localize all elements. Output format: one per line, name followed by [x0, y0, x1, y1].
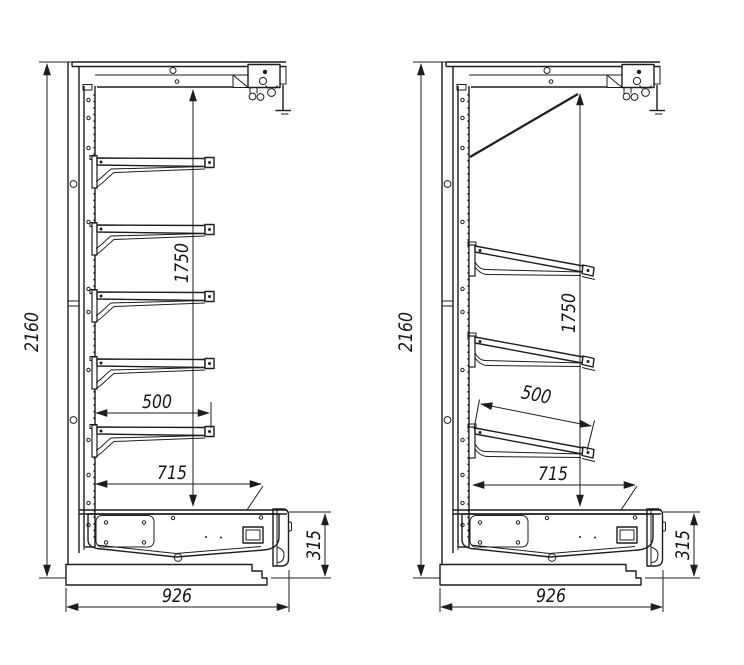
inclined-shelf-bracket — [468, 242, 595, 280]
air-deflector-line — [470, 94, 578, 157]
svg-text:500: 500 — [142, 391, 172, 413]
inclined-shelf-bracket — [468, 424, 595, 462]
shelf-bracket — [90, 290, 214, 323]
unit-frame — [66, 62, 292, 585]
shelf-bracket — [90, 223, 214, 256]
dim-overall-height: 2160 — [395, 62, 448, 578]
dim-overall-depth: 926 — [440, 570, 663, 612]
svg-text:315: 315 — [672, 530, 694, 560]
drawing-canvas: 2160 1750 500 715 315 926 — [0, 0, 744, 665]
view-horizontal-shelves: 2160 1750 500 715 315 926 — [21, 62, 331, 612]
inclined-shelf-bracket — [468, 333, 595, 371]
shelf-bracket — [90, 357, 214, 390]
svg-text:926: 926 — [162, 585, 192, 607]
svg-text:715: 715 — [538, 463, 568, 485]
view-inclined-shelves: 2160 1750 500 715 315 926 — [395, 62, 700, 612]
svg-text:500: 500 — [519, 381, 553, 409]
dim-base-depth: 715 — [96, 462, 263, 510]
svg-text:1750: 1750 — [171, 243, 193, 283]
svg-text:1750: 1750 — [558, 293, 580, 333]
dim-shelf-depth: 500 — [96, 391, 211, 428]
svg-text:315: 315 — [303, 530, 325, 560]
svg-text:2160: 2160 — [21, 312, 43, 352]
shelf-bracket — [90, 425, 214, 458]
dim-base-depth: 715 — [473, 463, 637, 510]
dim-overall-depth: 926 — [66, 570, 289, 612]
technical-drawing: 2160 1750 500 715 315 926 — [0, 0, 744, 665]
dim-base-height: 315 — [271, 512, 331, 578]
svg-text:926: 926 — [536, 585, 566, 607]
dim-overall-height: 2160 — [21, 62, 74, 578]
svg-text:2160: 2160 — [395, 312, 417, 352]
shelf-bracket — [90, 156, 214, 189]
svg-text:715: 715 — [157, 462, 187, 484]
unit-frame — [440, 62, 666, 585]
